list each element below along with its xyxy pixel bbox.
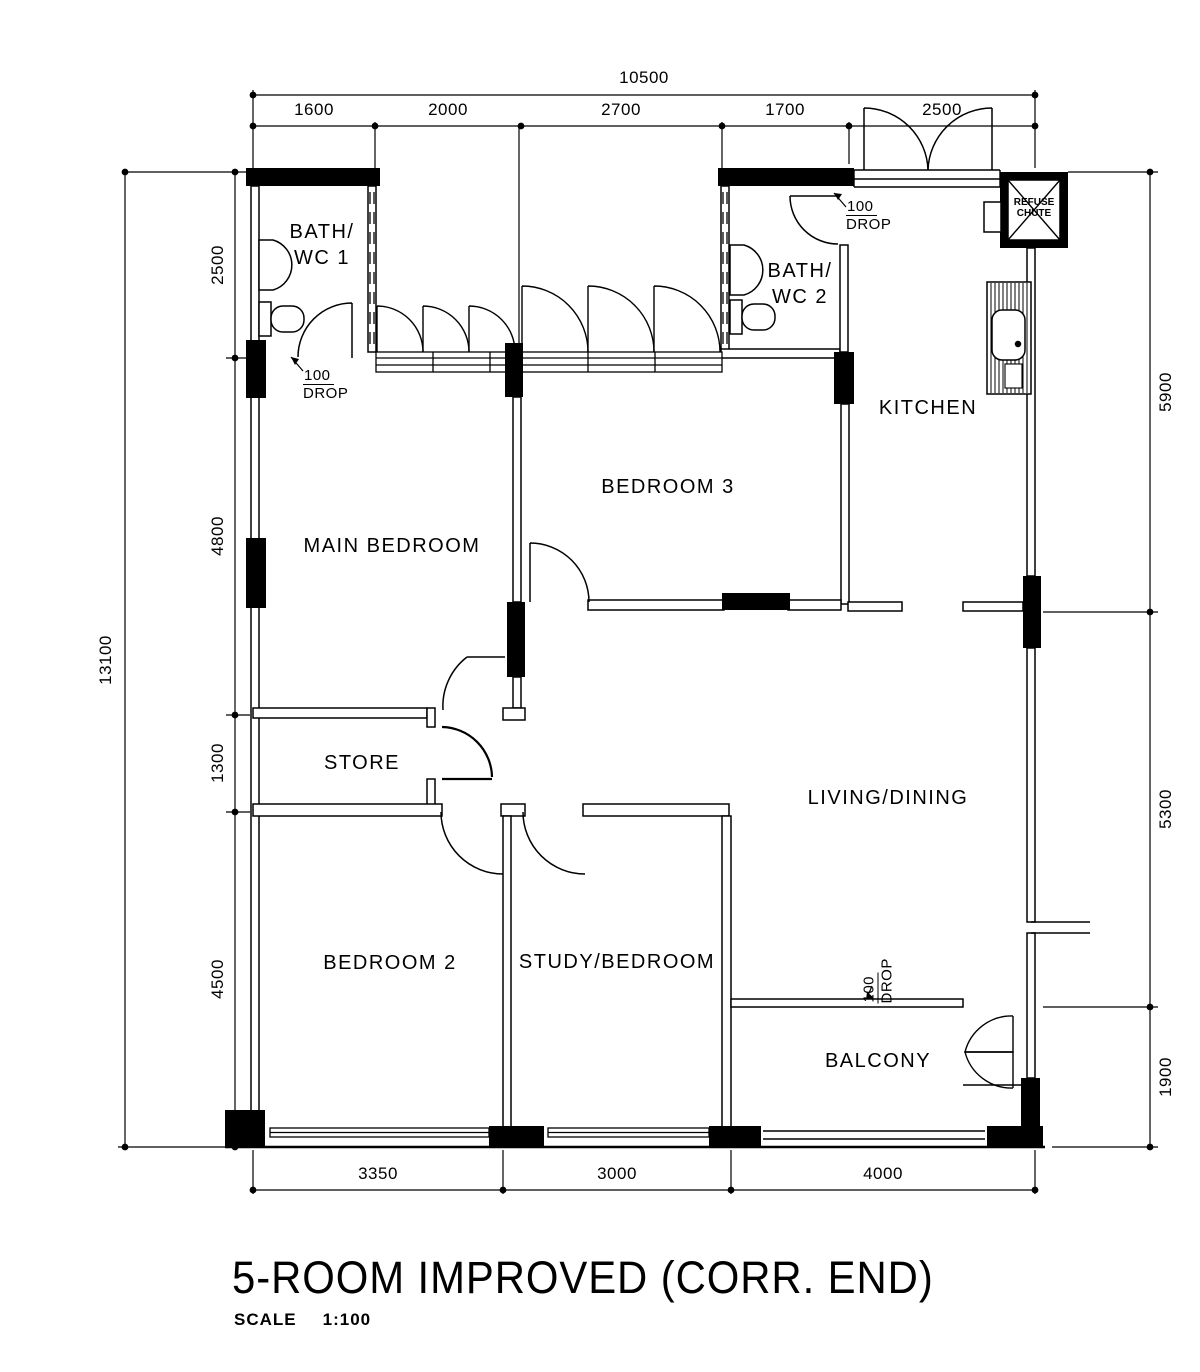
bedroom2-door <box>441 812 503 874</box>
room-label-living-dining: LIVING/DINING <box>808 785 969 811</box>
room-label-line: BATH/ <box>290 219 355 245</box>
drop-value: 100 <box>303 367 334 385</box>
dim-left-2500: 2500 <box>208 245 228 285</box>
drop-note-kitchen: 100 DROP <box>846 198 891 233</box>
bath2-door <box>790 196 838 244</box>
window-swing-arcs <box>377 286 720 352</box>
dim-bottom-4000: 4000 <box>863 1164 903 1184</box>
scale-label: SCALE <box>234 1310 297 1329</box>
floorplan-page: 10500 1600 2000 2700 1700 2500 13100 250… <box>0 0 1200 1372</box>
entrance-door-left <box>864 108 928 170</box>
basin-icon-bath1 <box>259 240 292 290</box>
drop-note-balcony: 100 DROP <box>861 944 896 1004</box>
dim-left-overall: 13100 <box>96 635 116 685</box>
room-label-study-bedroom: STUDY/BEDROOM <box>519 949 715 975</box>
refuse-chute-line: CHUTE <box>1004 208 1064 219</box>
dim-top-2700: 2700 <box>601 100 641 120</box>
bedroom3-door <box>530 543 589 602</box>
corridor-window-band <box>376 286 722 372</box>
drop-value: 100 <box>861 973 879 1004</box>
room-label-line: WC 2 <box>768 284 833 310</box>
dim-left-1300: 1300 <box>208 743 228 783</box>
dim-right-5900: 5900 <box>1156 372 1176 412</box>
dim-top-2500: 2500 <box>922 100 962 120</box>
dim-bottom-3350: 3350 <box>358 1164 398 1184</box>
chute-hopper <box>984 202 1001 232</box>
room-label-kitchen: KITCHEN <box>879 395 977 421</box>
room-label-balcony: BALCONY <box>825 1048 931 1074</box>
toilet-icon-bath1 <box>259 302 304 336</box>
scale-note: SCALE1:100 <box>234 1310 397 1330</box>
drawing-title: 5-ROOM IMPROVED (CORR. END) <box>232 1252 934 1304</box>
balcony-bifold-door <box>965 1016 1013 1088</box>
study-door <box>523 812 585 874</box>
walls-thin <box>251 186 1035 1128</box>
room-label-line: BATH/ <box>768 258 833 284</box>
dim-top-overall: 10500 <box>619 68 669 88</box>
scale-value: 1:100 <box>323 1310 371 1329</box>
refuse-chute-line: REFUSE <box>1004 197 1064 208</box>
door-swings <box>298 108 1013 1088</box>
drop-label: DROP <box>879 944 896 1004</box>
bath1-door <box>298 303 352 358</box>
room-label-line: WC 1 <box>290 245 355 271</box>
store-door <box>442 727 492 779</box>
refuse-chute-label: REFUSE CHUTE <box>1004 197 1064 219</box>
room-label-bath-wc-1: BATH/ WC 1 <box>290 219 355 271</box>
drop-label: DROP <box>303 385 348 402</box>
dim-right-1900: 1900 <box>1156 1057 1176 1097</box>
room-label-bath-wc-2: BATH/ WC 2 <box>768 258 833 310</box>
room-label-main-bedroom: MAIN BEDROOM <box>304 533 481 559</box>
kitchen-sink <box>987 282 1031 394</box>
basin-icon-bath2 <box>730 245 763 295</box>
room-label-bedroom-3: BEDROOM 3 <box>601 474 735 500</box>
drop-label: DROP <box>846 216 891 233</box>
dim-top-2000: 2000 <box>428 100 468 120</box>
dim-left-4500: 4500 <box>208 959 228 999</box>
dim-top-1600: 1600 <box>294 100 334 120</box>
drop-value: 100 <box>846 198 877 216</box>
dim-top-1700: 1700 <box>765 100 805 120</box>
main-bedroom-door <box>443 657 505 710</box>
room-label-bedroom-2: BEDROOM 2 <box>323 950 457 976</box>
dim-bottom-3000: 3000 <box>597 1164 637 1184</box>
room-label-store: STORE <box>324 750 400 776</box>
dim-left-4800: 4800 <box>208 516 228 556</box>
drop-note-bath1: 100 DROP <box>303 367 348 402</box>
dim-right-5300: 5300 <box>1156 789 1176 829</box>
